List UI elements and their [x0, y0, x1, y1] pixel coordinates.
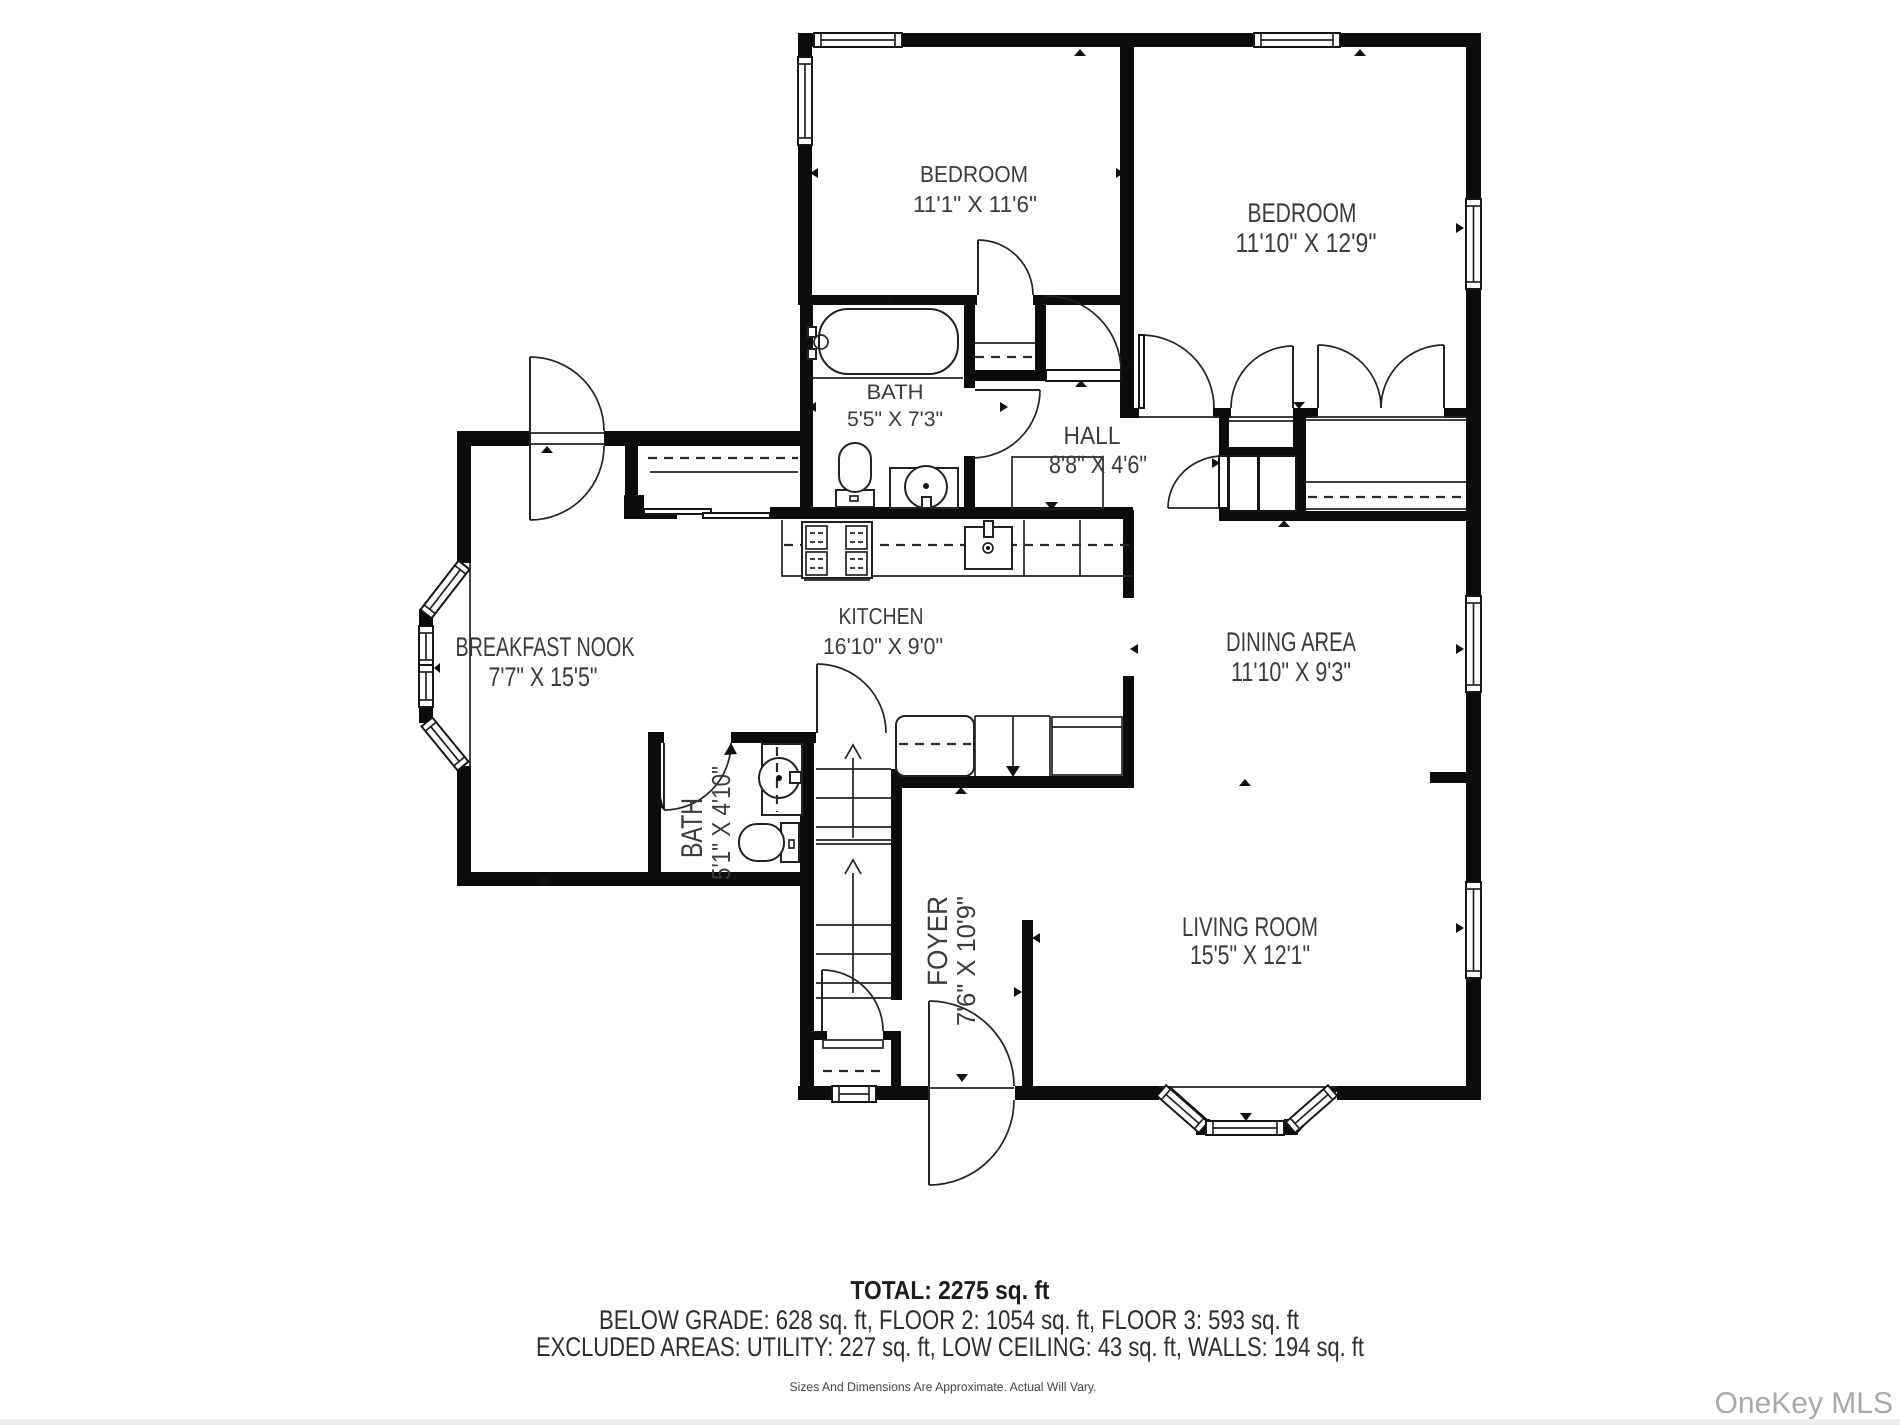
svg-text:OneKey MLS: OneKey MLS [1715, 1387, 1893, 1420]
svg-text:7'7" X 15'5": 7'7" X 15'5" [489, 662, 598, 692]
svg-text:8'8" X 4'6": 8'8" X 4'6" [1049, 451, 1147, 479]
svg-text:15'5" X 12'1": 15'5" X 12'1" [1190, 940, 1310, 970]
svg-text:11'10" X 9'3": 11'10" X 9'3" [1231, 657, 1351, 687]
svg-text:HALL: HALL [1064, 422, 1121, 450]
svg-text:7'6" X 10'9": 7'6" X 10'9" [951, 896, 981, 1026]
svg-text:BELOW GRADE: 628 sq. ft, FLOOR: BELOW GRADE: 628 sq. ft, FLOOR 2: 1054 s… [599, 1305, 1299, 1335]
svg-text:Sizes And Dimensions Are Appro: Sizes And Dimensions Are Approximate. Ac… [790, 1380, 1097, 1394]
svg-text:11'1" X 11'6": 11'1" X 11'6" [913, 191, 1037, 217]
svg-text:FOYER: FOYER [922, 896, 953, 986]
svg-text:TOTAL: 2275 sq. ft: TOTAL: 2275 sq. ft [851, 1275, 1050, 1305]
svg-text:5'1" X 4'10": 5'1" X 4'10" [706, 766, 736, 880]
svg-text:KITCHEN: KITCHEN [839, 603, 924, 629]
svg-text:LIVING ROOM: LIVING ROOM [1182, 912, 1318, 942]
svg-text:5'5" X 7'3": 5'5" X 7'3" [847, 408, 943, 431]
svg-text:BEDROOM: BEDROOM [1248, 198, 1357, 228]
svg-text:16'10" X 9'0": 16'10" X 9'0" [823, 633, 943, 659]
svg-text:EXCLUDED AREAS: UTILITY: 227 s: EXCLUDED AREAS: UTILITY: 227 sq. ft, LOW… [536, 1332, 1364, 1362]
svg-text:BEDROOM: BEDROOM [920, 161, 1028, 187]
svg-text:BATH: BATH [676, 798, 709, 858]
svg-text:11'10" X 12'9": 11'10" X 12'9" [1236, 228, 1377, 258]
svg-text:BREAKFAST NOOK: BREAKFAST NOOK [456, 632, 635, 662]
svg-text:DINING AREA: DINING AREA [1226, 627, 1356, 657]
svg-text:BATH: BATH [867, 381, 924, 404]
